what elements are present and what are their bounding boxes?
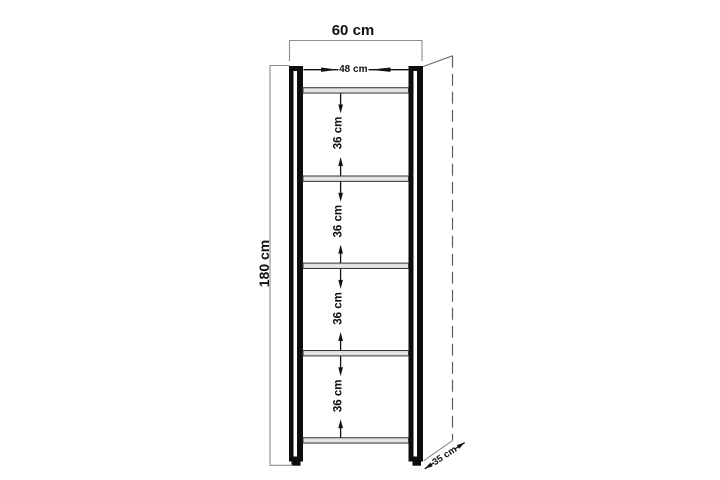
- svg-text:36 cm: 36 cm: [333, 117, 345, 150]
- svg-text:180 cm: 180 cm: [256, 240, 272, 287]
- svg-text:36 cm: 36 cm: [333, 292, 345, 325]
- svg-text:48 cm: 48 cm: [339, 64, 367, 75]
- svg-text:60 cm: 60 cm: [332, 22, 375, 39]
- svg-text:36 cm: 36 cm: [333, 379, 345, 412]
- svg-text:36 cm: 36 cm: [333, 205, 345, 238]
